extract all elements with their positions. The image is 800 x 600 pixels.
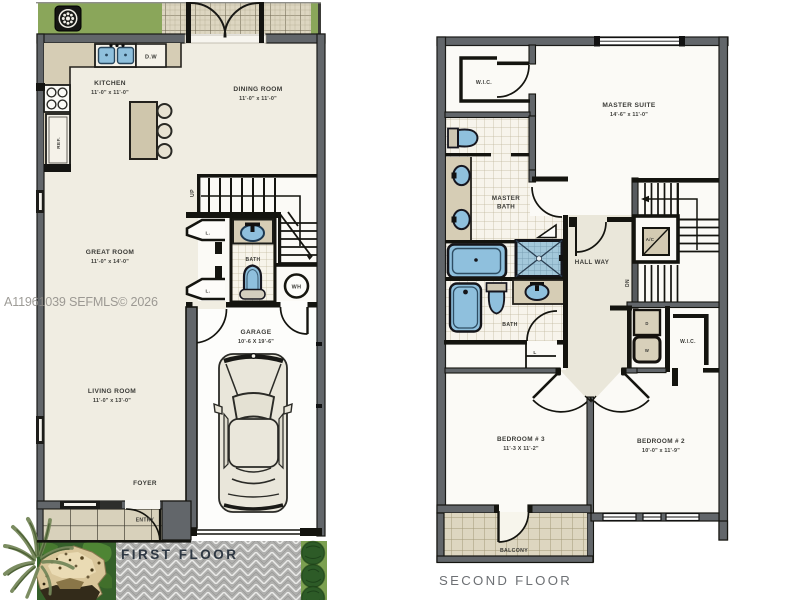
svg-text:DINING ROOM: DINING ROOM (233, 86, 282, 93)
svg-text:HALL WAY: HALL WAY (575, 259, 610, 266)
svg-text:SECOND FLOOR: SECOND FLOOR (439, 573, 572, 588)
svg-text:L: L (533, 350, 536, 356)
svg-text:KITCHEN: KITCHEN (94, 80, 126, 87)
svg-text:GARAGE: GARAGE (240, 329, 271, 336)
svg-text:WH: WH (292, 285, 302, 291)
svg-text:D: D (645, 321, 648, 326)
svg-text:W.I.C.: W.I.C. (476, 80, 492, 86)
svg-text:W.I.C.: W.I.C. (680, 339, 696, 345)
svg-text:L.: L. (206, 289, 211, 295)
svg-text:DN: DN (625, 279, 631, 287)
svg-text:11'-0" x 13'-0": 11'-0" x 13'-0" (93, 398, 131, 404)
svg-text:D.W: D.W (145, 55, 157, 61)
svg-text:W: W (645, 348, 649, 353)
svg-text:A11961039 SEFMLS© 2026: A11961039 SEFMLS© 2026 (4, 295, 158, 309)
svg-text:ENTRY: ENTRY (136, 518, 155, 524)
svg-text:A/C: A/C (646, 237, 655, 242)
svg-text:BALCONY: BALCONY (500, 548, 528, 554)
svg-text:BATH: BATH (497, 204, 515, 211)
svg-text:11'-3 X 11'-2": 11'-3 X 11'-2" (503, 446, 539, 452)
svg-text:10'-0" x 11'-9": 10'-0" x 11'-9" (642, 448, 680, 454)
svg-text:GREAT ROOM: GREAT ROOM (86, 249, 135, 256)
svg-text:L.: L. (206, 231, 211, 237)
svg-text:LIVING ROOM: LIVING ROOM (88, 388, 136, 395)
svg-text:FIRST FLOOR: FIRST FLOOR (121, 547, 239, 562)
svg-text:FOYER: FOYER (133, 480, 157, 487)
svg-text:10'-6 X 19'-6": 10'-6 X 19'-6" (238, 339, 274, 345)
svg-text:BATH: BATH (502, 322, 517, 328)
svg-text:BEDROOM # 3: BEDROOM # 3 (497, 436, 545, 443)
svg-text:UP: UP (190, 189, 196, 197)
svg-text:11'-0" x 11'-0": 11'-0" x 11'-0" (91, 90, 129, 96)
svg-text:MASTER SUITE: MASTER SUITE (602, 102, 656, 109)
svg-text:BATH: BATH (246, 257, 261, 263)
svg-text:14'-6" x 11'-0": 14'-6" x 11'-0" (610, 112, 648, 118)
svg-text:BEDROOM # 2: BEDROOM # 2 (637, 438, 685, 445)
svg-text:11'-0" x 11'-0": 11'-0" x 11'-0" (239, 96, 277, 102)
svg-text:11'-0" x 14'-0": 11'-0" x 14'-0" (91, 259, 129, 265)
svg-text:MASTER: MASTER (492, 195, 520, 202)
svg-text:REF.: REF. (56, 137, 62, 149)
